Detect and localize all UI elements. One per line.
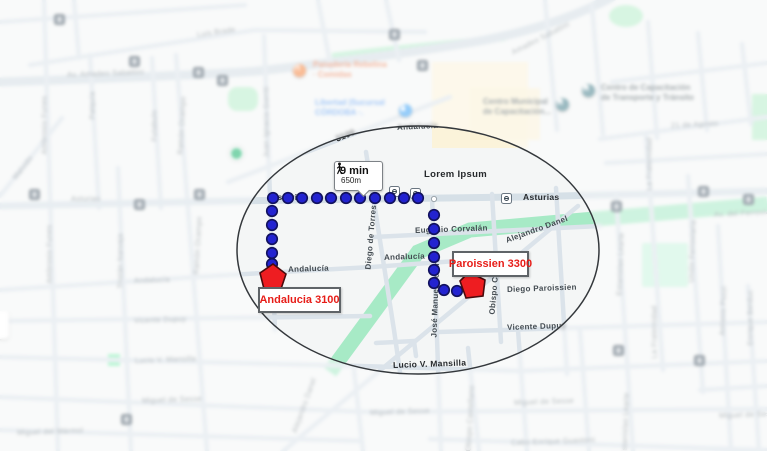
route-distance: 650m <box>341 176 382 185</box>
map-viewport[interactable]: Luis BradeAv. Amadeo SabattiniAmadeo Sab… <box>0 0 767 451</box>
focus-dim-overlay <box>0 0 767 451</box>
route-info-callout[interactable]: 9 min 650m <box>334 161 383 191</box>
walking-person-icon <box>335 162 344 175</box>
origin-label-box: Andalucia 3100 <box>258 287 341 313</box>
destination-label: Paroissien 3300 <box>449 258 532 270</box>
destination-label-box: Paroissien 3300 <box>452 251 529 277</box>
origin-label: Andalucia 3100 <box>259 294 339 306</box>
